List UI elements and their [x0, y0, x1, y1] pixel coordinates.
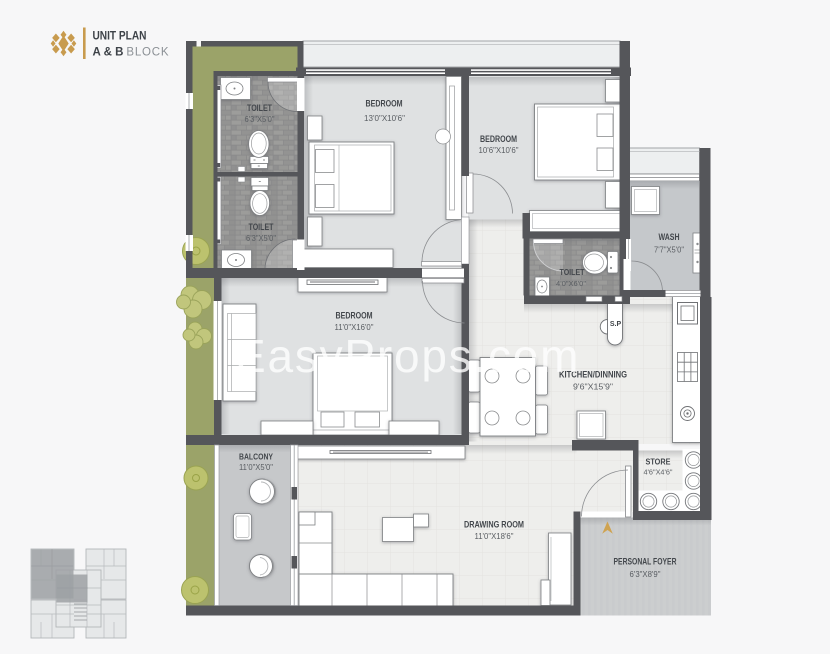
svg-text:BALCONY: BALCONY — [239, 452, 273, 462]
svg-text:STORE: STORE — [646, 457, 671, 467]
svg-text:BEDROOM: BEDROOM — [480, 134, 517, 144]
svg-text:13'0"X10'6": 13'0"X10'6" — [364, 114, 405, 123]
svg-text:BEDROOM: BEDROOM — [366, 99, 403, 109]
svg-text:6'3"X8'9": 6'3"X8'9" — [630, 570, 661, 579]
svg-text:6'3"X5'0": 6'3"X5'0" — [245, 115, 275, 124]
svg-text:TOILET: TOILET — [247, 103, 272, 113]
svg-text:DRAWING ROOM: DRAWING ROOM — [464, 520, 524, 531]
svg-text:S.P: S.P — [610, 321, 622, 328]
svg-text:UNIT PLAN: UNIT PLAN — [93, 31, 147, 43]
svg-text:PERSONAL FOYER: PERSONAL FOYER — [614, 557, 677, 567]
svg-text:9'6"X15'9": 9'6"X15'9" — [573, 383, 613, 392]
svg-text:10'6"X10'6": 10'6"X10'6" — [479, 146, 519, 155]
svg-text:7'7"X5'0": 7'7"X5'0" — [654, 246, 684, 255]
svg-text:6'3"X5'0": 6'3"X5'0" — [246, 234, 276, 243]
svg-text:4'0"X6'0": 4'0"X6'0" — [556, 279, 586, 288]
svg-text:A & BBLOCK: A & BBLOCK — [93, 47, 170, 59]
svg-text:TOILET: TOILET — [249, 222, 274, 232]
svg-text:EasyProps.com: EasyProps.com — [235, 330, 581, 382]
svg-text:4'6"X4'6": 4'6"X4'6" — [644, 468, 673, 477]
svg-text:WASH: WASH — [659, 232, 680, 242]
svg-text:11'0"X5'0": 11'0"X5'0" — [239, 463, 273, 472]
svg-text:BEDROOM: BEDROOM — [336, 311, 373, 321]
svg-text:TOILET: TOILET — [560, 267, 586, 277]
svg-text:11'0"X18'6": 11'0"X18'6" — [475, 532, 514, 541]
